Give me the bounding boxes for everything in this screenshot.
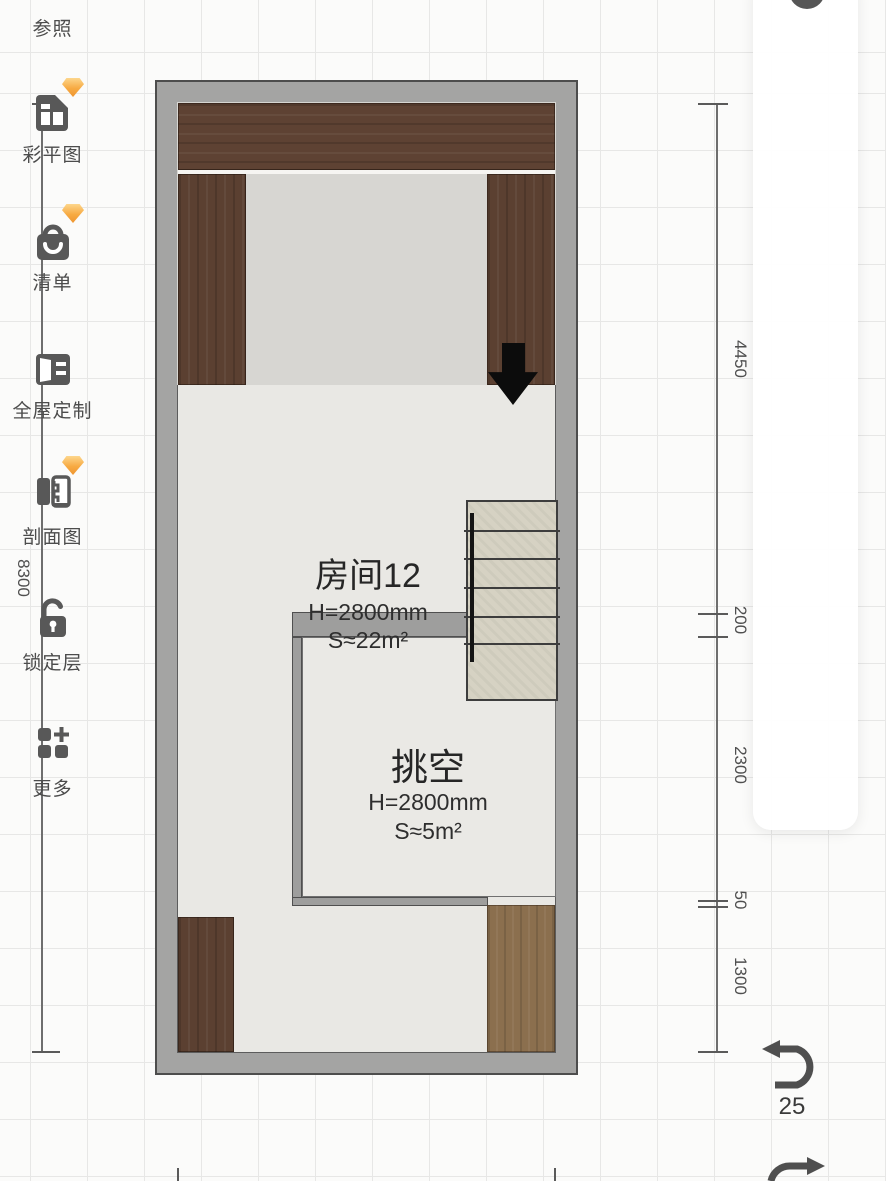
tool-reference[interactable]: 参照 — [0, 14, 105, 41]
stair-tread-line — [464, 643, 560, 645]
bottom-dimension-tick — [554, 1168, 556, 1181]
stair-tread-line — [464, 616, 560, 618]
room12-area-label: S≈22m² — [280, 627, 456, 654]
cabinet-bottom-right[interactable] — [487, 905, 555, 1052]
tool-color-plan-button[interactable] — [0, 90, 105, 138]
tool-panel — [753, 0, 858, 830]
section-view-icon — [30, 468, 76, 514]
wardrobe-top[interactable] — [178, 103, 555, 170]
void-name-label: 挑空 — [340, 737, 516, 791]
stair-tread-line — [464, 558, 560, 560]
room12-height-label: H=2800mm — [280, 599, 456, 626]
bottom-dimension-tick — [177, 1168, 179, 1181]
stair-tread-line — [464, 530, 560, 532]
wardrobe-left[interactable] — [178, 174, 246, 385]
redo-icon[interactable] — [760, 1154, 826, 1181]
staircase[interactable] — [466, 500, 558, 701]
dimension-tick — [698, 636, 728, 638]
stair-tread-line — [464, 587, 560, 589]
dimension-label-200: 200 — [730, 583, 750, 657]
tool-section-view-button[interactable] — [0, 468, 105, 516]
undo-count-label: 25 — [757, 1093, 827, 1121]
list-icon — [30, 218, 76, 264]
color-plan-icon — [30, 90, 76, 136]
tool-list[interactable]: 清单 — [0, 268, 105, 295]
stair-handrail — [470, 513, 474, 662]
dimension-label-4450: 4450 — [730, 322, 750, 396]
tool-list-button[interactable] — [0, 218, 105, 266]
tool-section-view[interactable]: 剖面图 — [0, 522, 105, 549]
tool-lock-layer-button[interactable] — [0, 594, 105, 644]
tool-lock-layer[interactable]: 锁定层 — [0, 648, 105, 675]
tool-more[interactable]: 更多 — [0, 774, 105, 801]
dimension-tick — [698, 613, 728, 615]
dimension-label-2300: 2300 — [730, 728, 750, 802]
dimension-tick — [698, 103, 728, 105]
void-height-label: H=2800mm — [340, 789, 516, 816]
dimension-line — [716, 104, 718, 1052]
dimension-label-1300: 1300 — [730, 939, 750, 1013]
undo-icon[interactable] — [761, 1040, 827, 1092]
void-left-wall[interactable] — [292, 637, 302, 906]
tool-custom-furniture-button[interactable] — [0, 346, 105, 394]
void-area-label: S≈5m² — [340, 818, 516, 845]
tool-color-plan[interactable]: 彩平图 — [0, 140, 105, 167]
custom-furniture-icon — [30, 346, 76, 392]
lock-layer-icon — [30, 594, 76, 642]
tool-more-button[interactable] — [0, 720, 105, 768]
room12-name-label: 房间12 — [280, 548, 456, 597]
more-icon — [30, 720, 76, 766]
tool-custom-furniture[interactable]: 全屋定制 — [0, 396, 105, 423]
dimension-tick — [698, 900, 728, 902]
void-bottom-wall[interactable] — [292, 897, 488, 906]
dimension-tick — [32, 1051, 60, 1053]
floorplan-canvas[interactable]: 8300 4450 200 2300 50 1300 — [0, 0, 886, 1181]
dimension-tick — [698, 906, 728, 908]
dimension-label-50: 50 — [730, 863, 750, 937]
cabinet-bottom-left[interactable] — [178, 917, 234, 1052]
dimension-tick — [698, 1051, 728, 1053]
